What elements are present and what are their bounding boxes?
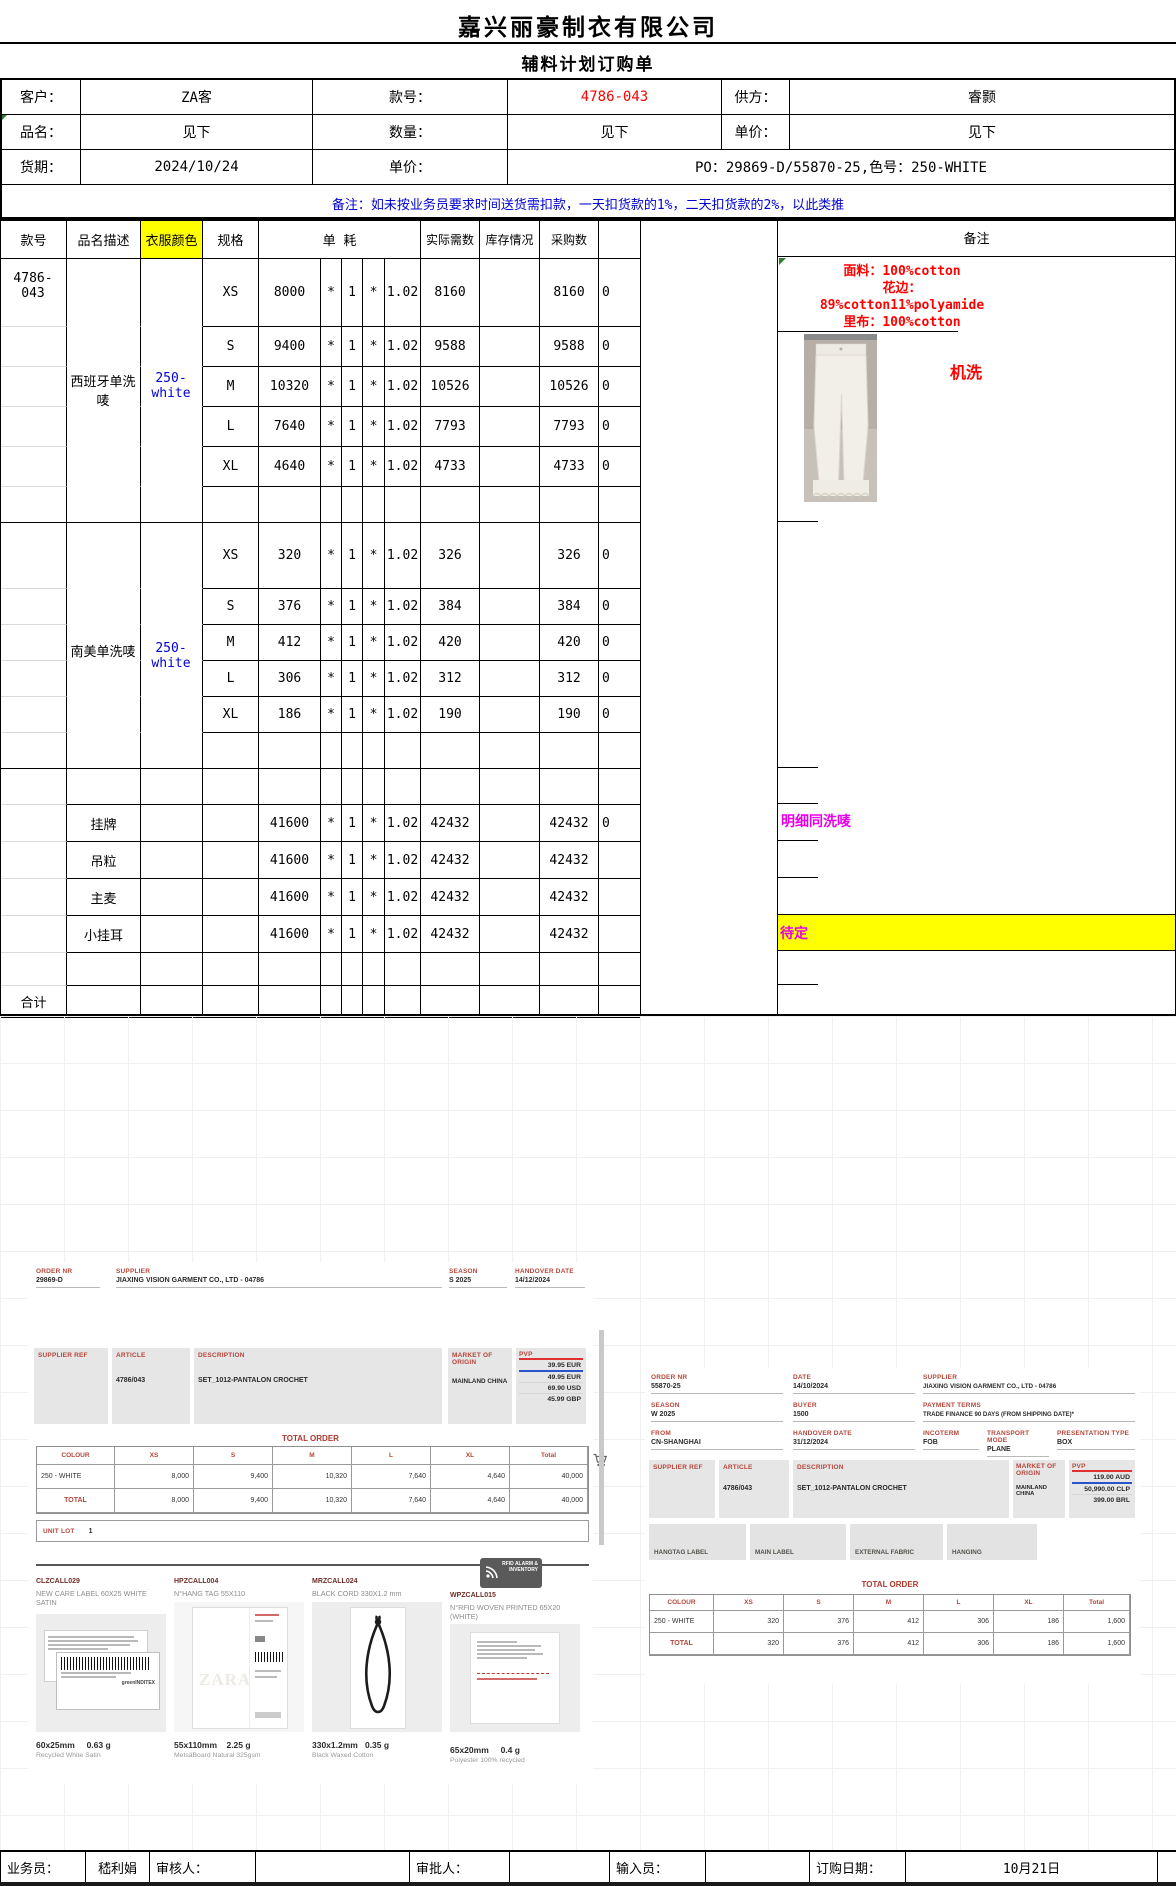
table-cell-empty[interactable] [480, 842, 540, 879]
table-cell[interactable]: * [363, 661, 385, 697]
table-cell-empty[interactable] [480, 879, 540, 916]
table-cell[interactable]: 0 [599, 697, 641, 733]
pvp-value: 399.00 BRL [1072, 1495, 1132, 1505]
table-cell-empty[interactable] [385, 769, 421, 805]
table-cell[interactable]: * [363, 842, 385, 879]
table-cell[interactable]: 1 [342, 661, 363, 697]
table-cell[interactable]: XS [203, 259, 259, 327]
item-value[interactable]: 见下 [81, 115, 313, 149]
table-cell-empty[interactable] [480, 367, 540, 407]
table-cell[interactable]: 合计 [1, 986, 67, 1018]
left-total-order-title: TOTAL ORDER [28, 1434, 593, 1443]
table-row-size: L7640*1*1.02779377930 [0, 407, 641, 447]
table-cell-empty[interactable] [421, 953, 480, 986]
woven-label-image [450, 1624, 580, 1732]
table-cell[interactable]: S [203, 327, 259, 367]
table-cell[interactable]: * [363, 367, 385, 407]
table-cell[interactable]: 0 [599, 523, 641, 589]
table-cell-empty[interactable] [321, 986, 342, 1018]
table-cell[interactable]: 186 [259, 697, 321, 733]
doc-table-cell: 186 [994, 1611, 1064, 1633]
table-cell-empty[interactable] [141, 697, 203, 733]
table-cell-empty[interactable] [1, 487, 67, 523]
table-cell-empty[interactable] [141, 953, 203, 986]
table-cell[interactable]: 1 [342, 842, 363, 879]
field-label: DESCRIPTION [797, 1464, 1005, 1471]
table-cell[interactable]: 1.02 [385, 589, 421, 625]
table-cell[interactable]: 1.02 [385, 523, 421, 589]
style-no-cell[interactable]: 4786-043 [2, 271, 64, 301]
table-cell-empty[interactable] [421, 986, 480, 1018]
table-cell-empty[interactable] [67, 523, 141, 589]
customer-value[interactable]: ZA客 [81, 80, 313, 114]
table-cell-empty[interactable] [540, 487, 599, 523]
table-cell[interactable]: * [363, 625, 385, 661]
table-cell[interactable]: * [363, 327, 385, 367]
table-cell[interactable]: 0 [599, 367, 641, 407]
table-cell-empty[interactable] [259, 769, 321, 805]
table-cell-empty[interactable] [203, 842, 259, 879]
table-cell-empty[interactable] [480, 697, 540, 733]
table-cell[interactable]: * [321, 589, 342, 625]
spreadsheet-page: 嘉兴丽豪制衣有限公司 辅料计划订购单 客户： ZA客 款号： 4786-043 … [0, 0, 1176, 1886]
table-row-filler [0, 769, 641, 805]
table-cell[interactable]: 1.02 [385, 805, 421, 842]
table-cell[interactable]: 420 [540, 625, 599, 661]
table-cell[interactable]: 42432 [421, 916, 480, 953]
table-cell[interactable]: XL [203, 697, 259, 733]
table-cell-empty[interactable] [1, 697, 67, 733]
table-cell-empty[interactable] [1, 407, 67, 447]
table-cell[interactable]: 190 [540, 697, 599, 733]
field-label: ARTICLE [723, 1464, 785, 1471]
table-cell[interactable]: 1 [342, 589, 363, 625]
table-cell[interactable]: * [363, 407, 385, 447]
table-cell-empty[interactable] [67, 986, 141, 1018]
table-cell-empty[interactable] [421, 733, 480, 769]
table-cell[interactable]: * [321, 407, 342, 447]
table-cell[interactable]: 10526 [421, 367, 480, 407]
table-cell[interactable]: * [321, 661, 342, 697]
field-value: 4786/043 [116, 1377, 186, 1384]
pending-cell[interactable]: 待定 [778, 914, 1175, 951]
table-cell[interactable]: * [363, 589, 385, 625]
doc-table-cell: 7,640 [352, 1465, 431, 1489]
field-label: PVP [519, 1351, 583, 1358]
table-cell[interactable]: * [321, 625, 342, 661]
item-weight: 0.4 g [501, 1745, 520, 1755]
table-cell[interactable]: 1 [342, 327, 363, 367]
doc-table-cell: 250 - WHITE [650, 1611, 714, 1633]
table-cell[interactable]: 320 [259, 523, 321, 589]
table-cell-empty[interactable] [203, 953, 259, 986]
style-value[interactable]: 4786-043 [508, 80, 722, 114]
field-label: PVP [1072, 1463, 1132, 1470]
table-cell[interactable]: 主麦 [67, 879, 141, 916]
table-cell[interactable]: 1 [342, 407, 363, 447]
table-cell-empty[interactable] [385, 953, 421, 986]
table-cell[interactable]: M [203, 625, 259, 661]
table-cell[interactable]: 1 [342, 625, 363, 661]
table-cell-empty[interactable] [480, 733, 540, 769]
sales-value[interactable]: 嵇利娟 [86, 1852, 150, 1882]
qty-value[interactable]: 见下 [508, 115, 722, 149]
table-cell[interactable]: 0 [599, 327, 641, 367]
table-cell-empty[interactable] [141, 447, 203, 487]
table-cell-empty[interactable] [599, 879, 641, 916]
field-value: 1500 [793, 1411, 915, 1418]
table-cell[interactable]: 312 [540, 661, 599, 697]
table-cell[interactable]: 1 [342, 259, 363, 327]
supplier-label: 供方： [722, 80, 790, 114]
table-cell[interactable]: * [321, 842, 342, 879]
item-label: 品名： [2, 115, 81, 149]
table-cell-empty[interactable] [141, 589, 203, 625]
table-cell[interactable]: 1 [342, 697, 363, 733]
table-cell-empty[interactable] [1, 661, 67, 697]
table-cell[interactable]: 挂牌 [67, 805, 141, 842]
table-cell-empty[interactable] [259, 986, 321, 1018]
table-cell-empty[interactable] [540, 953, 599, 986]
table-cell[interactable]: L [203, 661, 259, 697]
table-cell-empty[interactable] [421, 487, 480, 523]
table-cell[interactable]: 0 [599, 259, 641, 327]
table-cell[interactable]: 4733 [540, 447, 599, 487]
input-value[interactable] [706, 1852, 810, 1882]
footer-row: 业务员： 嵇利娟 审核人： 审批人： 输入员： 订购日期： 10月21日 [0, 1850, 1176, 1886]
block1-name[interactable]: 西班牙单洗唛 [67, 371, 139, 409]
doc-table-cell: 320 [714, 1611, 784, 1633]
table-cell[interactable]: 0 [599, 805, 641, 842]
table-cell-empty[interactable] [67, 259, 141, 327]
table-cell-empty[interactable] [1, 367, 67, 407]
product-photo [804, 334, 877, 502]
fabric-line: 面料：100%cotton [782, 263, 1022, 280]
table-cell-empty[interactable] [385, 487, 421, 523]
table-cell[interactable]: 0 [599, 625, 641, 661]
table-cell[interactable]: * [321, 879, 342, 916]
table-cell[interactable]: * [321, 916, 342, 953]
approve-value[interactable] [510, 1852, 610, 1882]
check-value[interactable] [256, 1852, 410, 1882]
table-cell-empty[interactable] [480, 447, 540, 487]
table-cell[interactable]: * [321, 327, 342, 367]
table-cell[interactable]: 1 [342, 879, 363, 916]
table-cell-empty[interactable] [1, 805, 67, 842]
table-cell[interactable]: XS [203, 523, 259, 589]
table-cell[interactable]: * [363, 805, 385, 842]
table-cell[interactable]: 41600 [259, 879, 321, 916]
table-cell-empty[interactable] [141, 327, 203, 367]
doc-table-cell: 376 [784, 1611, 854, 1633]
table-cell[interactable]: * [321, 367, 342, 407]
table-cell-empty[interactable] [141, 986, 203, 1018]
table-cell-empty[interactable] [203, 916, 259, 953]
table-cell-empty[interactable] [67, 447, 141, 487]
table-cell[interactable]: 42432 [540, 842, 599, 879]
table-cell-empty[interactable] [321, 487, 342, 523]
table-cell-empty[interactable] [67, 589, 141, 625]
table-cell-empty[interactable] [141, 769, 203, 805]
table-cell[interactable]: * [363, 697, 385, 733]
table-cell-empty[interactable] [67, 769, 141, 805]
table-cell[interactable]: 4733 [421, 447, 480, 487]
table-cell[interactable]: XL [203, 447, 259, 487]
table-cell-empty[interactable] [421, 769, 480, 805]
table-cell-empty[interactable] [141, 259, 203, 327]
table-cell-empty[interactable] [599, 769, 641, 805]
table-cell[interactable]: 412 [259, 625, 321, 661]
footer-spacer [1158, 1852, 1176, 1882]
scroll-divider[interactable] [599, 1330, 604, 1545]
table-cell[interactable]: 1.02 [385, 259, 421, 327]
table-cell-empty[interactable] [321, 769, 342, 805]
table-cell-empty[interactable] [363, 769, 385, 805]
table-cell-empty[interactable] [259, 487, 321, 523]
table-cell-empty[interactable] [540, 769, 599, 805]
field-label: DESCRIPTION [198, 1352, 438, 1359]
table-row-acc: 小挂耳41600*1*1.024243242432 [0, 916, 641, 953]
table-cell-empty[interactable] [321, 733, 342, 769]
table-cell-empty[interactable] [342, 733, 363, 769]
table-cell-empty[interactable] [1, 733, 67, 769]
table-cell-empty[interactable] [203, 769, 259, 805]
table-cell-empty[interactable] [1, 842, 67, 879]
table-cell-empty[interactable] [385, 733, 421, 769]
table-cell-empty[interactable] [141, 916, 203, 953]
table-cell[interactable]: * [363, 447, 385, 487]
table-cell-empty[interactable] [1, 447, 67, 487]
table-cell[interactable]: 0 [599, 407, 641, 447]
table-cell[interactable]: * [321, 259, 342, 327]
table-cell-empty[interactable] [599, 953, 641, 986]
table-cell[interactable]: 41600 [259, 916, 321, 953]
table-cell-empty[interactable] [599, 842, 641, 879]
table-cell[interactable]: 8160 [421, 259, 480, 327]
table-cell[interactable]: 7793 [540, 407, 599, 447]
field-value: CN-SHANGHAI [651, 1439, 783, 1446]
table-cell-empty[interactable] [540, 733, 599, 769]
table-cell[interactable]: 9588 [540, 327, 599, 367]
table-cell[interactable]: 190 [421, 697, 480, 733]
table-cell[interactable]: 42432 [540, 879, 599, 916]
table-cell-empty[interactable] [259, 733, 321, 769]
table-cell[interactable]: 384 [421, 589, 480, 625]
date-value[interactable]: 10月21日 [906, 1852, 1158, 1882]
table-cell-empty[interactable] [480, 523, 540, 589]
table-cell-empty[interactable] [342, 953, 363, 986]
left-total-order-table: COLOURXSSMLXLTotal250 - WHITE8,0009,4001… [36, 1446, 589, 1514]
table-cell-empty[interactable] [67, 487, 141, 523]
table-cell-empty[interactable] [203, 487, 259, 523]
table-cell-empty[interactable] [67, 733, 141, 769]
table-cell-empty[interactable] [203, 733, 259, 769]
table-cell[interactable]: M [203, 367, 259, 407]
table-cell-empty[interactable] [67, 327, 141, 367]
table-cell-empty[interactable] [67, 697, 141, 733]
field-value: TRADE FINANCE 90 DAYS (FROM SHIPPING DAT… [923, 1411, 1135, 1418]
table-cell-empty[interactable] [342, 986, 363, 1018]
table-cell[interactable]: 1 [342, 447, 363, 487]
table-cell[interactable]: 10320 [259, 367, 321, 407]
table-cell-empty[interactable] [259, 953, 321, 986]
table-cell[interactable]: 1.02 [385, 407, 421, 447]
table-cell-empty[interactable] [480, 661, 540, 697]
table-cell-empty[interactable] [141, 805, 203, 842]
table-cell-empty[interactable] [203, 805, 259, 842]
table-cell[interactable]: 1 [342, 367, 363, 407]
table-cell[interactable]: 9400 [259, 327, 321, 367]
block1-color[interactable]: 250-white [141, 371, 201, 401]
field-value: JIAXING VISION GARMENT CO., LTD - 04786 [923, 1383, 1135, 1390]
table-cell[interactable]: 1.02 [385, 367, 421, 407]
table-cell-empty[interactable] [1, 625, 67, 661]
supplier-value[interactable]: 睿颢 [790, 80, 1174, 114]
table-cell-empty[interactable] [599, 986, 641, 1018]
table-cell-empty[interactable] [480, 259, 540, 327]
table-cell-empty[interactable] [1, 523, 67, 589]
table-cell[interactable]: 1.02 [385, 842, 421, 879]
table-cell[interactable]: 41600 [259, 805, 321, 842]
table-cell[interactable]: 42432 [540, 916, 599, 953]
table-cell-empty[interactable] [480, 986, 540, 1018]
table-cell[interactable]: L [203, 407, 259, 447]
table-cell-empty[interactable] [141, 487, 203, 523]
table-cell[interactable]: * [321, 805, 342, 842]
table-cell-empty[interactable] [1, 769, 67, 805]
price-value[interactable]: 见下 [790, 115, 1174, 149]
table-cell-empty[interactable] [599, 487, 641, 523]
table-cell[interactable]: 42432 [421, 879, 480, 916]
table-cell[interactable]: 306 [259, 661, 321, 697]
table-cell[interactable]: 0 [599, 661, 641, 697]
table-cell-empty[interactable] [141, 523, 203, 589]
table-cell[interactable]: 9588 [421, 327, 480, 367]
table-cell-empty[interactable] [363, 953, 385, 986]
table-cell[interactable]: 0 [599, 589, 641, 625]
table-cell-empty[interactable] [141, 879, 203, 916]
table-cell-empty[interactable] [342, 487, 363, 523]
table-cell[interactable]: * [321, 523, 342, 589]
item-size-weight: 65x20mm 0.4 g [450, 1745, 520, 1755]
table-cell[interactable]: 小挂耳 [67, 916, 141, 953]
table-cell-empty[interactable] [599, 733, 641, 769]
table-cell-empty[interactable] [480, 769, 540, 805]
table-cell[interactable]: 42432 [421, 842, 480, 879]
table-cell[interactable]: 1.02 [385, 447, 421, 487]
table-cell[interactable]: * [363, 916, 385, 953]
table-cell[interactable]: 1.02 [385, 879, 421, 916]
table-cell[interactable]: 41600 [259, 842, 321, 879]
po-value[interactable]: PO：29869-D/55870-25,色号：250-WHITE [508, 150, 1174, 184]
table-cell-empty[interactable] [141, 842, 203, 879]
table-cell[interactable]: 42432 [540, 805, 599, 842]
table-cell[interactable]: 10526 [540, 367, 599, 407]
table-cell-empty[interactable] [141, 407, 203, 447]
table-cell[interactable]: 1.02 [385, 697, 421, 733]
table-row-total: 合计 [0, 986, 641, 1018]
table-cell-empty[interactable] [480, 625, 540, 661]
table-cell[interactable]: 8000 [259, 259, 321, 327]
table-cell[interactable]: S [203, 589, 259, 625]
table-cell-empty[interactable] [480, 407, 540, 447]
table-cell-empty[interactable] [1, 879, 67, 916]
table-cell[interactable]: 8160 [540, 259, 599, 327]
table-cell-empty[interactable] [363, 733, 385, 769]
table-cell[interactable]: 1 [342, 916, 363, 953]
table-cell[interactable]: * [321, 447, 342, 487]
table-cell[interactable]: 326 [540, 523, 599, 589]
table-cell-empty[interactable] [363, 986, 385, 1018]
item-weight: 0.63 g [87, 1740, 111, 1750]
block2-color[interactable]: 250-white [141, 641, 201, 671]
table-cell[interactable]: * [363, 259, 385, 327]
table-cell-empty[interactable] [480, 589, 540, 625]
table-cell-empty[interactable] [67, 953, 141, 986]
table-cell[interactable]: 1.02 [385, 661, 421, 697]
table-cell-empty[interactable] [203, 986, 259, 1018]
table-cell-empty[interactable] [385, 986, 421, 1018]
form-title: 辅料计划订购单 [0, 50, 1176, 75]
block2-name[interactable]: 南美单洗唛 [67, 641, 139, 660]
table-cell-empty[interactable] [1, 916, 67, 953]
table-cell[interactable]: 1 [342, 523, 363, 589]
table-cell[interactable]: 326 [421, 523, 480, 589]
table-cell[interactable]: 1.02 [385, 327, 421, 367]
table-cell-empty[interactable] [321, 953, 342, 986]
table-cell[interactable]: 4640 [259, 447, 321, 487]
table-cell[interactable]: 1 [342, 805, 363, 842]
table-cell-empty[interactable] [1, 953, 67, 986]
table-cell-empty[interactable] [599, 916, 641, 953]
table-row-size: XL186*1*1.021901900 [0, 697, 641, 733]
table-cell-empty[interactable] [480, 953, 540, 986]
price2-label: 单价： [313, 150, 508, 184]
table-cell-empty[interactable] [480, 805, 540, 842]
table-cell-empty[interactable] [67, 407, 141, 447]
table-cell-empty[interactable] [67, 661, 141, 697]
table-cell[interactable]: * [321, 697, 342, 733]
table-cell[interactable]: * [363, 879, 385, 916]
table-cell-empty[interactable] [203, 879, 259, 916]
table-cell[interactable]: 1.02 [385, 916, 421, 953]
table-cell[interactable]: 42432 [421, 805, 480, 842]
table-cell-empty[interactable] [1, 589, 67, 625]
table-cell-empty[interactable] [540, 986, 599, 1018]
table-cell[interactable]: 376 [259, 589, 321, 625]
table-cell-empty[interactable] [480, 487, 540, 523]
table-cell-empty[interactable] [480, 327, 540, 367]
table-cell[interactable]: 0 [599, 447, 641, 487]
table-cell[interactable]: 7640 [259, 407, 321, 447]
table-cell[interactable]: 7793 [421, 407, 480, 447]
col-blank [599, 221, 641, 259]
table-cell[interactable]: * [363, 523, 385, 589]
table-cell-empty[interactable] [141, 733, 203, 769]
table-cell[interactable]: 384 [540, 589, 599, 625]
doc-table-cell: 306 [924, 1611, 994, 1633]
table-cell-empty[interactable] [1, 327, 67, 367]
table-cell-empty[interactable] [363, 487, 385, 523]
table-cell-empty[interactable] [480, 916, 540, 953]
table-cell[interactable]: 420 [421, 625, 480, 661]
table-cell[interactable]: 1.02 [385, 625, 421, 661]
table-cell-empty[interactable] [342, 769, 363, 805]
table-cell[interactable]: 312 [421, 661, 480, 697]
delivery-value[interactable]: 2024/10/24 [81, 150, 313, 184]
table-cell[interactable]: 吊粒 [67, 842, 141, 879]
right-description-box: DESCRIPTION SET_1012-PANTALON CROCHET [793, 1460, 1009, 1518]
